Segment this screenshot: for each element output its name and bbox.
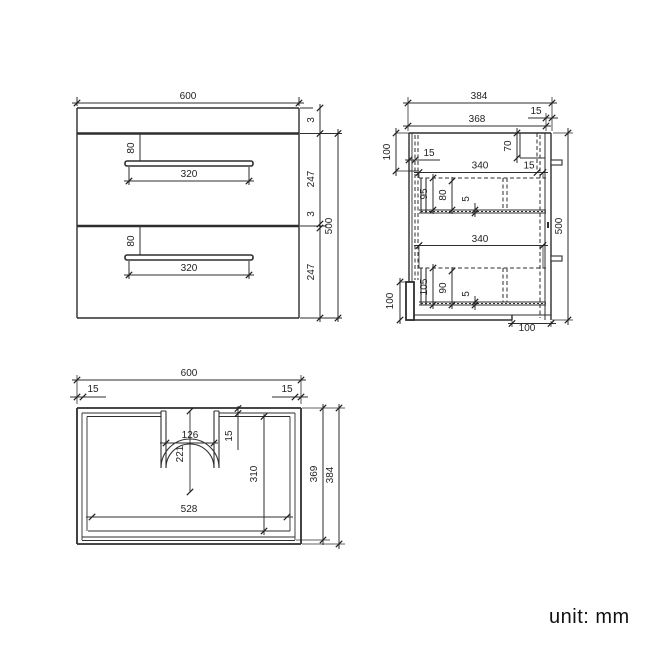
dim-label: 369 (309, 465, 320, 482)
dim-label: 15 (224, 430, 235, 442)
dim-label: 5 (461, 196, 472, 202)
dim-label: 126 (182, 430, 199, 441)
dim-label: 247 (306, 263, 317, 280)
dim-label: 100 (385, 292, 396, 309)
dim-label: 100 (382, 143, 393, 160)
dim-label: 80 (126, 142, 137, 154)
part-outline (125, 255, 253, 260)
dim-label: 105 (419, 278, 430, 295)
dim-label: 221 (175, 445, 186, 462)
dim-label: 15 (530, 106, 542, 117)
dim-label: 95 (419, 188, 430, 200)
dim-label: 310 (249, 465, 260, 482)
dim-label: 500 (324, 217, 335, 234)
part-outline (551, 256, 562, 261)
dim-label: 368 (469, 114, 486, 125)
part-outline (551, 160, 562, 165)
dim-label: 340 (472, 234, 489, 245)
dim-label: 70 (503, 140, 514, 152)
dim-label: 320 (181, 169, 198, 180)
top-view: 600151512622115310528369384 (70, 368, 345, 549)
dim-label: 384 (325, 466, 336, 483)
dim-label: 100 (519, 323, 536, 334)
dim-label: 247 (306, 170, 317, 187)
dim-label: 3 (306, 117, 317, 123)
side-view: 3841536810015703401595805340105905100100… (382, 91, 573, 334)
dim-label: 80 (438, 189, 449, 201)
dim-label: 600 (181, 368, 198, 379)
dim-label: 500 (554, 217, 565, 234)
part-outline (125, 161, 253, 166)
dim-label: 340 (472, 161, 489, 172)
dim-label: 90 (438, 282, 449, 294)
dim-label: 80 (126, 235, 137, 247)
unit-note: unit: mm (549, 606, 630, 629)
dim-label: 5 (461, 291, 472, 297)
dim-label: 320 (181, 263, 198, 274)
dim-label: 384 (471, 91, 488, 102)
dim-label: 600 (180, 91, 197, 102)
part-outline (406, 282, 414, 320)
dim-label: 528 (181, 504, 198, 515)
dim-label: 15 (523, 161, 535, 172)
technical-drawing: 6008032080320324732475003841536810015703… (0, 0, 650, 650)
front-view: 600803208032032473247500 (72, 91, 342, 322)
dim-label: 15 (423, 148, 435, 159)
dim-label: 3 (306, 211, 317, 217)
dim-label: 15 (281, 384, 293, 395)
dim-label: 15 (87, 384, 99, 395)
